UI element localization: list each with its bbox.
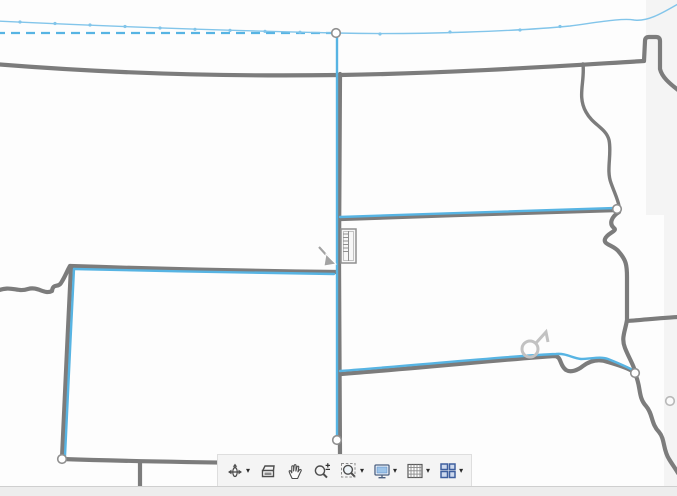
view-display-tool[interactable]: ▾ (372, 461, 398, 481)
map-edit-window: ▾ ▾ ▾ ▾ ▾ (0, 0, 677, 496)
id-mt-border (0, 266, 70, 292)
zoom-window-tool[interactable]: ▾ (339, 461, 365, 481)
overview-icon (259, 462, 277, 480)
guide-parallel-west (0, 21, 336, 33)
grid-icon (406, 462, 424, 480)
grid-display-tool[interactable]: ▾ (405, 461, 431, 481)
dropdown-caret-icon[interactable]: ▾ (426, 467, 430, 475)
guide-parallel-east (336, 4, 677, 34)
map-canvas[interactable] (0, 0, 677, 496)
view-navigation-toolbar: ▾ ▾ ▾ ▾ ▾ (217, 454, 472, 487)
vertex-handle-nd-sd-east[interactable] (613, 205, 622, 214)
dropdown-caret-icon[interactable]: ▾ (459, 467, 463, 475)
rotate-tool-indicator-icon (522, 332, 548, 357)
viewports-icon (439, 462, 457, 480)
edit-tool-cursor (319, 247, 336, 266)
minnesota-west-border (605, 212, 635, 371)
navigate-rotate-tool[interactable]: ▾ (225, 461, 251, 481)
dropdown-caret-icon[interactable]: ▾ (360, 467, 364, 475)
vertex-handle-sd-ne-east[interactable] (631, 369, 640, 378)
status-strip (0, 486, 677, 496)
dropdown-caret-icon[interactable]: ▾ (393, 467, 397, 475)
dropdown-caret-icon[interactable]: ▾ (246, 467, 250, 475)
overview-window-tool[interactable] (258, 461, 278, 481)
pan-tool[interactable] (285, 461, 305, 481)
zoom-in-out-tool[interactable] (312, 461, 332, 481)
navigate-icon (226, 462, 244, 480)
zoom-inout-icon (313, 462, 331, 480)
vertex-handle-bottom[interactable] (333, 436, 342, 445)
vertex-list-indicator-icon (341, 229, 356, 263)
viewport-layout-tool[interactable]: ▾ (438, 461, 464, 481)
vertex-handle-unselected[interactable] (666, 397, 675, 406)
mt-nd-meridian-border (339, 74, 340, 456)
vertex-handle-top[interactable] (332, 29, 341, 38)
pan-hand-icon (286, 462, 304, 480)
vertex-handle-wy-sw[interactable] (58, 455, 67, 464)
red-river-border (582, 64, 619, 206)
display-icon (373, 462, 391, 480)
zoom-window-icon (340, 462, 358, 480)
